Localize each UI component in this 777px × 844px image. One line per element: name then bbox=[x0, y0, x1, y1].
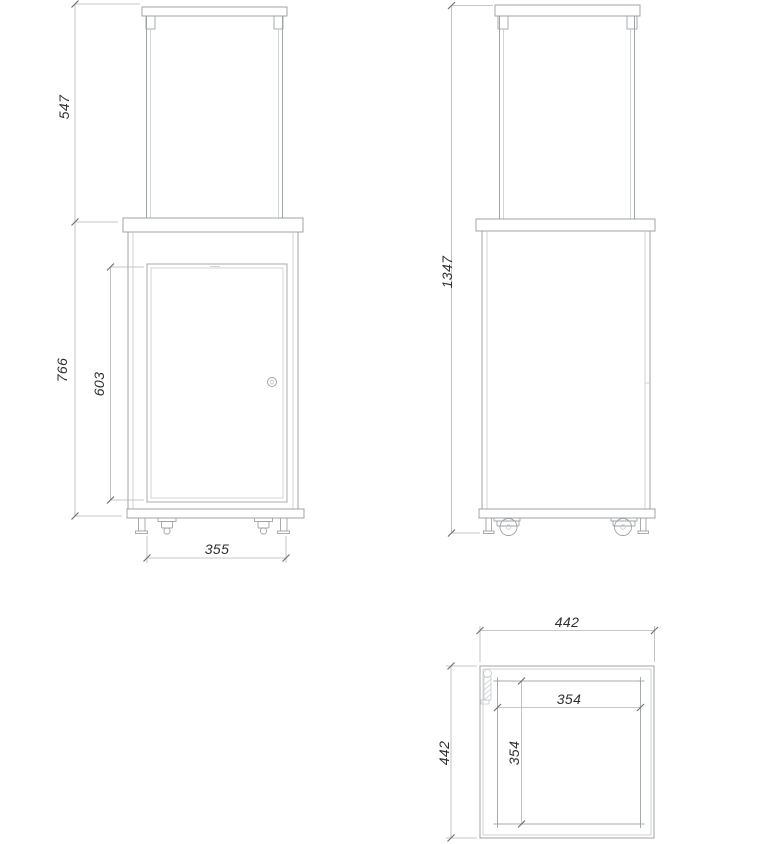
side-caster-left bbox=[494, 518, 520, 536]
front-door-panel bbox=[147, 264, 287, 502]
front-top-plate bbox=[123, 218, 303, 232]
front-leveling-foot-right bbox=[278, 518, 290, 534]
dim-label-feet-spacing: 355 bbox=[205, 541, 230, 557]
side-glass-panel-right bbox=[631, 16, 635, 219]
side-view bbox=[448, 2, 655, 537]
front-cabinet-body bbox=[128, 232, 298, 509]
side-leveling-foot-right bbox=[638, 518, 649, 534]
dim-label-outer-width: 442 bbox=[555, 614, 580, 630]
dim-label-door-height: 603 bbox=[91, 372, 107, 397]
front-glass-panel-left bbox=[147, 16, 151, 218]
front-view bbox=[72, 1, 305, 564]
dim-label-inner-depth: 354 bbox=[506, 741, 522, 766]
side-glass-panel-left bbox=[500, 16, 504, 219]
side-base-plate bbox=[479, 509, 655, 518]
side-caster-right bbox=[611, 518, 637, 536]
technical-drawing: 547 766 603 355 1347 442 442 354 354 bbox=[0, 0, 777, 844]
dim-front-door-height bbox=[107, 264, 144, 504]
side-top-plate bbox=[476, 219, 655, 231]
drawing-canvas bbox=[0, 0, 777, 844]
side-leveling-foot-left bbox=[484, 518, 495, 534]
front-caster-right bbox=[255, 518, 273, 534]
front-caster-left bbox=[158, 518, 176, 534]
dim-label-glass-height: 547 bbox=[56, 95, 72, 120]
front-glass-panel-right bbox=[279, 16, 283, 218]
dim-label-outer-depth: 442 bbox=[436, 741, 452, 766]
front-leveling-foot-left bbox=[136, 518, 148, 534]
side-glass-top-cap bbox=[495, 5, 640, 29]
dim-top-outer-width bbox=[477, 626, 659, 662]
dim-label-inner-width: 354 bbox=[557, 691, 582, 707]
front-door-knob bbox=[268, 378, 277, 387]
front-base-plate bbox=[127, 509, 304, 518]
dim-front-heights bbox=[72, 1, 141, 520]
front-glass-top-cap bbox=[142, 7, 287, 29]
side-cabinet-body bbox=[482, 231, 650, 509]
dim-label-body-height: 766 bbox=[54, 358, 70, 383]
top-valve-detail bbox=[481, 670, 492, 705]
top-view bbox=[446, 626, 658, 842]
dim-label-total-height: 1347 bbox=[439, 256, 455, 289]
